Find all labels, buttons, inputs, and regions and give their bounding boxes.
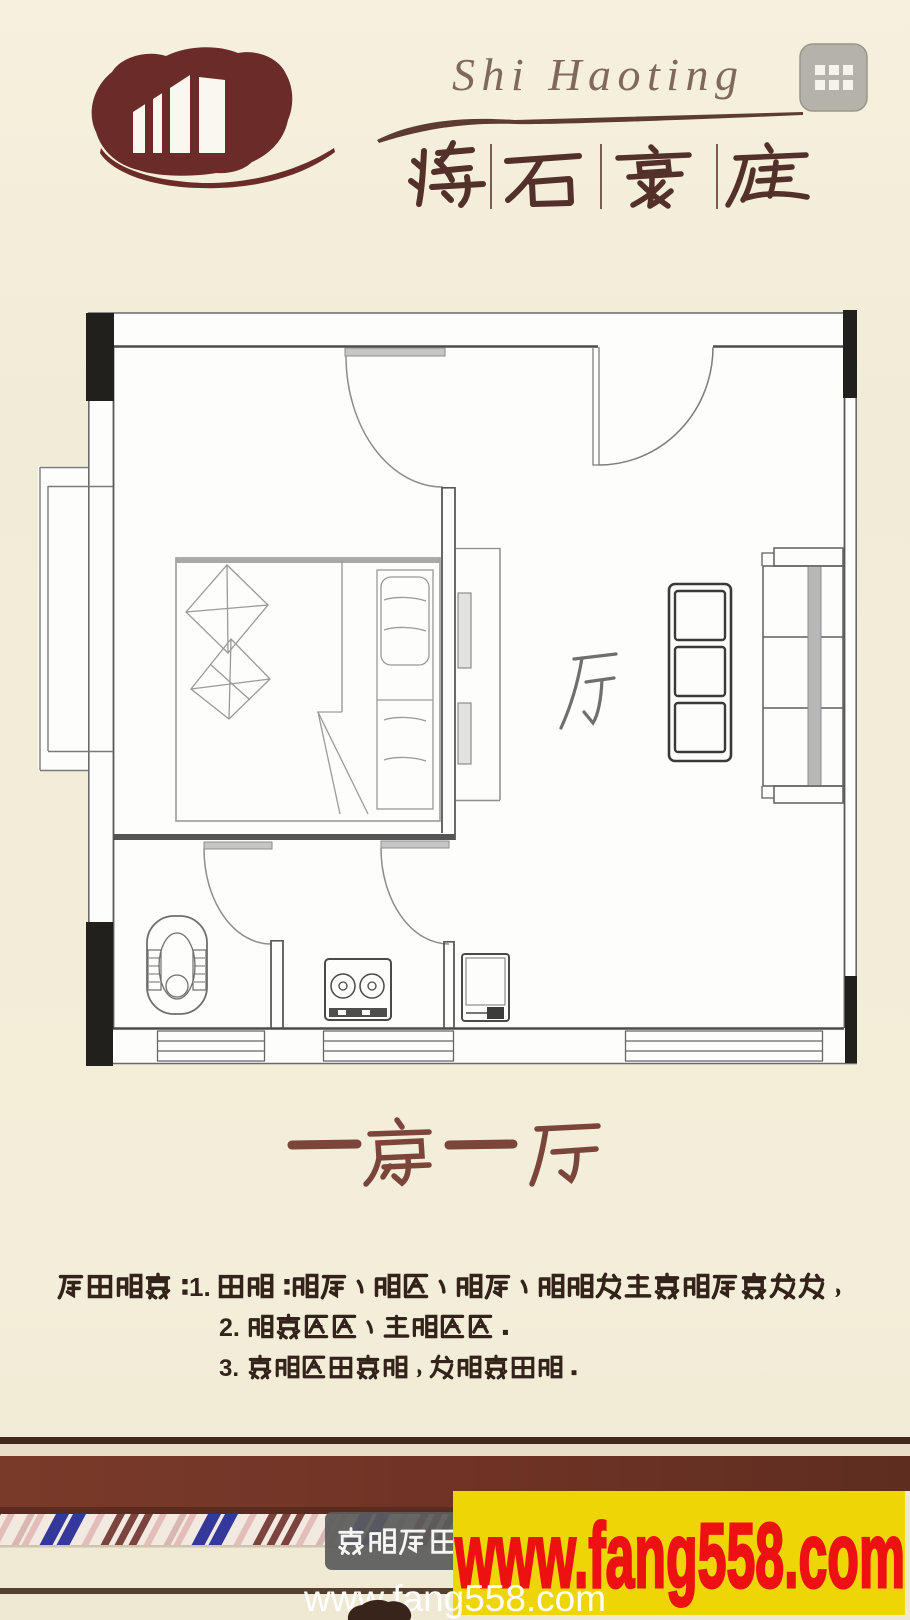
svg-text:2.: 2. [219,1314,240,1342]
svg-text:www.fang558.com: www.fang558.com [303,1578,606,1619]
svg-text:3.: 3. [219,1355,239,1382]
svg-text:Shi Haoting: Shi Haoting [452,49,745,100]
svg-text:1.: 1. [189,1272,211,1302]
